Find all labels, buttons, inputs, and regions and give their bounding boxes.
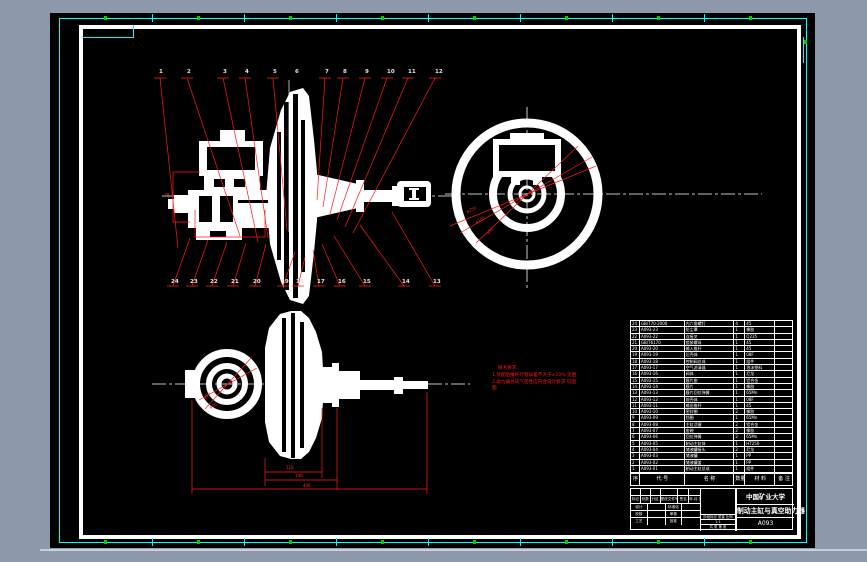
bom-cell-remark [775, 403, 792, 408]
green-tick [381, 540, 384, 544]
bom-cell-material: 尼龙 [745, 371, 775, 376]
bom-cell-name: 主缸活塞 [685, 422, 735, 427]
bom-cell-qty: 1 [734, 359, 745, 364]
bom-cell-material: 橡胶 [745, 384, 775, 389]
bom-cell-name: 锁紧螺母 [685, 340, 735, 345]
bom-cell-code: A093-13 [640, 390, 685, 395]
title-block-right: 中国矿业大学 制动主缸与真空助力器 A093 [736, 489, 794, 531]
title-block-stage-cell: 阶段标记 质量 比例 1:1 共 张 第 张 [701, 489, 736, 531]
part-number-label: 2 [187, 69, 191, 75]
green-tick [473, 16, 476, 20]
title-block-cell [682, 518, 700, 525]
bom-cell-name: 挡圈 [685, 415, 735, 420]
bom-cell-material: 65Mn [745, 434, 775, 439]
cyan-tick [704, 14, 705, 22]
part-number-label: 11 [408, 69, 416, 75]
green-tick [749, 540, 752, 544]
bom-cell-name: 输出推杆 [685, 403, 735, 408]
bom-cell-name: 内六角螺钉 [685, 321, 735, 326]
bom-cell-qty: 2 [734, 428, 745, 433]
bom-cell-remark [775, 422, 792, 427]
bom-cell-qty: 1 [734, 441, 745, 446]
part-number-label: 6 [295, 69, 299, 75]
bom-cell-qty: 2 [734, 434, 745, 439]
bom-cell-name: 膜片 [685, 384, 735, 389]
cyan-tick [704, 538, 705, 546]
drawing-number: A093 [737, 518, 794, 530]
bom-cell-seq: 16 [631, 371, 640, 376]
bom-cell-qty: 1 [734, 371, 745, 376]
bom-cell-seq: 2 [631, 460, 640, 465]
end-view-reservoir [496, 142, 558, 174]
bom-cell-seq: 6 [631, 434, 640, 439]
bom-cell-code: A093-01 [640, 466, 685, 472]
bom-cell-material: 08F [745, 397, 775, 402]
bom-cell-code: A093-03 [640, 453, 685, 458]
title-block-cell [682, 504, 700, 510]
part-number-label: 22 [210, 279, 218, 285]
bom-cell-code: A093-16 [640, 371, 685, 376]
bom-cell-remark [775, 460, 792, 465]
cyan-tick [244, 14, 245, 22]
title-block-cell [661, 489, 679, 495]
bom-cell-seq: 4 [631, 447, 640, 452]
dim-main-left: 28 [166, 193, 170, 198]
bom-cell-remark [775, 340, 792, 345]
bom-cell-material: PP [745, 460, 775, 465]
bom-cell-code: A093-12 [640, 397, 685, 402]
green-tick [197, 540, 200, 544]
part-number-label: 13 [433, 279, 441, 285]
title-block-cell: 审核 [666, 511, 683, 517]
bom-cell-seq: 8 [631, 422, 640, 427]
bom-cell-remark [775, 434, 792, 439]
bom-cell-seq: 12 [631, 397, 640, 402]
bom-cell-seq: 15 [631, 378, 640, 383]
green-tick [289, 540, 292, 544]
title-block-cell: 更改文件号 [661, 496, 679, 502]
bom-cell-remark [775, 384, 792, 389]
green-tick [104, 540, 107, 544]
bom-cell-name: 密封圈 [685, 409, 735, 414]
bom-cell-qty: 1 [734, 403, 745, 408]
part-number-label: 21 [231, 279, 239, 285]
title-block-cell: 标记 [631, 496, 641, 502]
bottom-view-cutouts [282, 313, 304, 458]
bom-cell-material: 08F [745, 352, 775, 357]
bom-cell-seq: 3 [631, 453, 640, 458]
bom-cell-remark [775, 371, 792, 376]
bom-cell-seq: 18 [631, 359, 640, 364]
bom-cell-name: 储液罐接头 [685, 447, 735, 452]
green-tick [104, 16, 107, 20]
bom-cell-seq: 10 [631, 409, 640, 414]
bom-cell-seq: 24 [631, 321, 640, 326]
bom-cell-qty: 1 [734, 365, 745, 370]
cyan-tick [428, 14, 429, 22]
bom-cell-qty: 2 [734, 422, 745, 427]
bom-cell-qty: 1 [734, 340, 745, 345]
title-block-row [631, 489, 700, 496]
bom-cell-qty: 1 [734, 352, 745, 357]
title-block-cell [648, 518, 666, 525]
bom-cell-material: 65Mn [745, 390, 775, 395]
bom-cell-seq: 1 [631, 466, 640, 472]
bom-cell-material: 组件 [745, 466, 775, 472]
bom-header-seq: 序 [631, 474, 640, 485]
part-number-label: 10 [387, 69, 395, 75]
title-block-row: 校核审核 [631, 511, 700, 518]
title-block-cell [678, 489, 689, 495]
title-block-cell [641, 489, 651, 495]
part-number-label: 19 [281, 279, 289, 285]
bom-cell-seq: 14 [631, 384, 640, 389]
cyan-tick [336, 538, 337, 546]
bom-header-material: 材 料 [745, 474, 775, 485]
bom-cell-remark [775, 334, 792, 339]
dim-length-b: 146 [295, 474, 303, 478]
bom-header-name: 名 称 [685, 474, 735, 485]
bom-cell-remark [775, 365, 792, 370]
bom-cell-code: A093-07 [640, 428, 685, 433]
title-block-row: 标记处数分区更改文件号签名年.月.日 [631, 496, 700, 503]
title-block-cell [648, 511, 666, 517]
part-number-label: 20 [253, 279, 261, 285]
title-block-cell [682, 511, 700, 517]
green-tick [381, 16, 384, 20]
bom-cell-remark [775, 453, 792, 458]
bom-cell-name: 控制阀总成 [685, 359, 735, 364]
cyan-tick [520, 538, 521, 546]
cyan-tick [336, 14, 337, 22]
technical-note-line: 1.装配后推杆行程误差不大于±10% 见图 [492, 373, 576, 380]
bom-cell-name: 储液罐 [685, 453, 735, 458]
bom-cell-remark [775, 415, 792, 420]
bom-cell-remark [775, 378, 792, 383]
bom-cell-name: 前壳体 [685, 397, 735, 402]
window-edge-highlight [40, 549, 867, 551]
bom-header-qty: 数量 [734, 474, 745, 485]
bom-cell-name: 皮碗 [685, 428, 735, 433]
bom-cell-seq: 17 [631, 365, 640, 370]
part-number-label: 18 [296, 279, 304, 285]
bom-cell-material: 橡胶 [745, 327, 775, 332]
bom-cell-qty: 1 [734, 378, 745, 383]
bom-cell-name: 连接叉 [685, 334, 735, 339]
bom-cell-code: A093-17 [640, 365, 685, 370]
part-number-label: 7 [325, 69, 329, 75]
bom-cell-material: 铝合金 [745, 422, 775, 427]
cyan-tick [152, 538, 153, 546]
bom-cell-qty: 1 [734, 453, 745, 458]
title-block-cell: 分区 [651, 496, 661, 502]
bom-cell-qty: 1 [734, 466, 745, 472]
green-tick [565, 540, 568, 544]
bom-cell-code: A093-09 [640, 415, 685, 420]
bom-row: 1A093-01制动主缸总成1组件 [631, 466, 792, 472]
bom-cell-code: A093-08 [640, 422, 685, 427]
bom-cell-qty: 1 [734, 346, 745, 351]
green-tick [197, 16, 200, 20]
title-block-cell: 年.月.日 [689, 496, 700, 502]
cyan-tick [244, 538, 245, 546]
bom-table: 24GB/T70-2000内六角螺钉44523A093-23防尘罩1橡胶22A0… [630, 320, 793, 473]
title-block: 标记处数分区更改文件号签名年.月.日设计标准化校核审核工艺批准 阶段标记 质量 … [630, 488, 793, 530]
bom-cell-remark [775, 359, 792, 364]
bom-cell-seq: 7 [631, 428, 640, 433]
bom-cell-material: 橡胶 [745, 409, 775, 414]
title-block-cell: 标准化 [666, 504, 683, 510]
dim-length-c: 406 [303, 484, 311, 488]
part-number-label: 9 [365, 69, 369, 75]
bom-cell-remark [775, 346, 792, 351]
bom-cell-remark [775, 352, 792, 357]
bom-cell-name: 膜片座 [685, 378, 735, 383]
title-block-cell: 校核 [631, 511, 648, 517]
bom-cell-name: 输入推杆 [685, 346, 735, 351]
bom-cell-seq: 22 [631, 334, 640, 339]
green-tick [289, 16, 292, 20]
bom-header-code: 代 号 [640, 474, 685, 485]
bom-cell-material: HT250 [745, 441, 775, 446]
green-tick [657, 540, 660, 544]
bom-cell-qty: 1 [734, 415, 745, 420]
bom-cell-material: 45 [745, 340, 775, 345]
bom-cell-code: A093-18 [640, 359, 685, 364]
bom-cell-qty: 1 [734, 460, 745, 465]
cad-black-canvas: 123456789101112 242322212019181716151413… [50, 13, 815, 548]
bom-cell-seq: 19 [631, 352, 640, 357]
bom-cell-remark [775, 466, 792, 472]
bom-cell-code: GB/T6170 [640, 340, 685, 345]
university-name: 中国矿业大学 [737, 489, 794, 505]
end-view-leg-left [511, 174, 520, 185]
technical-notes: 技术要求:1.装配后推杆行程误差不大于±10% 见图2.助力器总成气密性应符合设… [492, 366, 576, 393]
bom-cell-material: 尼龙 [745, 447, 775, 452]
bom-cell-name: 制动主缸体 [685, 441, 735, 446]
bom-cell-remark [775, 428, 792, 433]
technical-note-line: 技术要求: [498, 366, 576, 373]
part-number-label: 14 [402, 279, 410, 285]
technical-note-line: 图 [492, 386, 576, 393]
bom-cell-code: A093-05 [640, 441, 685, 446]
bom-cell-qty: 1 [734, 334, 745, 339]
cyan-tick [428, 538, 429, 546]
bom-cell-name: 后壳体 [685, 352, 735, 357]
drawing-title: 制动主缸与真空助力器 [737, 505, 794, 518]
bom-cell-seq: 9 [631, 415, 640, 420]
part-number-label: 17 [317, 279, 325, 285]
bom-cell-code: A093-06 [640, 434, 685, 439]
green-tick [749, 16, 752, 20]
bom-header-remark: 备 注 [775, 474, 792, 485]
bom-cell-material: 45 [745, 346, 775, 351]
bom-cell-remark [775, 409, 792, 414]
part-number-label: 8 [343, 69, 347, 75]
sheet-label: 共 张 第 张 [701, 525, 735, 529]
bom-cell-remark [775, 447, 792, 452]
end-view-leg-right [533, 174, 542, 185]
bom-cell-seq: 21 [631, 340, 640, 345]
bom-cell-code: GB/T70-2000 [640, 321, 685, 326]
bom-cell-name: 防尘罩 [685, 327, 735, 332]
bom-cell-code: A093-04 [640, 447, 685, 452]
bom-cell-remark [775, 441, 792, 446]
bom-cell-qty: 2 [734, 447, 745, 452]
bom-cell-qty: 1 [734, 397, 745, 402]
bom-cell-code: A093-22 [640, 334, 685, 339]
part-number-label: 15 [363, 279, 371, 285]
bom-cell-remark [775, 327, 792, 332]
bom-cell-name: 空气滤清器 [685, 365, 735, 370]
bom-cell-seq: 23 [631, 327, 640, 332]
bom-cell-remark [775, 390, 792, 395]
green-tick [657, 16, 660, 20]
bom-cell-material: PP [745, 453, 775, 458]
cyan-tick [520, 14, 521, 22]
bom-cell-code: A093-20 [640, 346, 685, 351]
part-number-label: 16 [338, 279, 346, 285]
bom-cell-seq: 11 [631, 403, 640, 408]
title-block-cell: 签名 [678, 496, 689, 502]
title-block-cell: 设计 [631, 504, 648, 510]
bom-cell-material: 组件 [745, 359, 775, 364]
bom-cell-name: 储液罐盖 [685, 460, 735, 465]
title-block-cell [648, 504, 666, 510]
bom-cell-qty: 1 [734, 390, 745, 395]
technical-note-line: 2.助力器总成气密性应符合设计要求 见图 [492, 380, 576, 387]
title-block-cell [651, 489, 661, 495]
bom-cell-code: A093-11 [640, 403, 685, 408]
dim-length-a: 118 [286, 466, 294, 470]
bom-cell-material: 铝合金 [745, 378, 775, 383]
part-number-label: 23 [190, 279, 198, 285]
bom-cell-material: 65Mn [745, 415, 775, 420]
bom-cell-name: 回位弹簧 [685, 434, 735, 439]
part-number-label: 1 [159, 69, 163, 75]
bom-cell-code: A093-19 [640, 352, 685, 357]
cyan-tick [152, 14, 153, 22]
bom-cell-qty: 1 [734, 327, 745, 332]
bom-cell-remark [775, 397, 792, 402]
bom-cell-code: A093-15 [640, 378, 685, 383]
bom-cell-material: 45 [745, 321, 775, 326]
title-block-row: 工艺批准 [631, 518, 700, 525]
bom-cell-name: 阀体 [685, 371, 735, 376]
bom-cell-code: A093-02 [640, 460, 685, 465]
part-number-label: 12 [435, 69, 443, 75]
bom-cell-code: A093-14 [640, 384, 685, 389]
title-block-change-grid: 标记处数分区更改文件号签名年.月.日设计标准化校核审核工艺批准 [631, 489, 701, 531]
part-number-label: 5 [273, 69, 277, 75]
part-number-label: 4 [245, 69, 249, 75]
bom-cell-name: 膜片回位弹簧 [685, 390, 735, 395]
bom-cell-code: A093-10 [640, 409, 685, 414]
part-number-label: 24 [171, 279, 179, 285]
cyan-tick [612, 14, 613, 22]
title-block-cell: 处数 [641, 496, 651, 502]
bom-cell-remark [775, 321, 792, 326]
title-block-row: 设计标准化 [631, 504, 700, 511]
end-view-cap [510, 133, 544, 141]
title-block-cell: 工艺 [631, 518, 648, 525]
bom-cell-material: 泡沫塑料 [745, 365, 775, 370]
bom-cell-seq: 20 [631, 346, 640, 351]
bom-cell-material: Q235 [745, 334, 775, 339]
cad-viewer-page: { "drawing": { "top_part_numbers": ["1",… [0, 0, 867, 562]
bom-cell-name: 制动主缸总成 [685, 466, 735, 472]
green-tick [473, 540, 476, 544]
title-block-cell: 批准 [666, 518, 683, 525]
bom-cell-qty: 2 [734, 409, 745, 414]
bom-header-row: 序代 号名 称数量材 料备 注 [630, 473, 793, 486]
bom-cell-qty: 4 [734, 321, 745, 326]
bom-cell-material: 橡胶 [745, 428, 775, 433]
title-block-cell [631, 489, 641, 495]
bom-cell-seq: 5 [631, 441, 640, 446]
green-tick [565, 16, 568, 20]
bom-cell-qty: 1 [734, 384, 745, 389]
bom-cell-code: A093-23 [640, 327, 685, 332]
part-number-label: 3 [223, 69, 227, 75]
bom-cell-material: 45 [745, 403, 775, 408]
bom-cell-seq: 13 [631, 390, 640, 395]
title-block-cell [689, 489, 700, 495]
cyan-tick [612, 538, 613, 546]
